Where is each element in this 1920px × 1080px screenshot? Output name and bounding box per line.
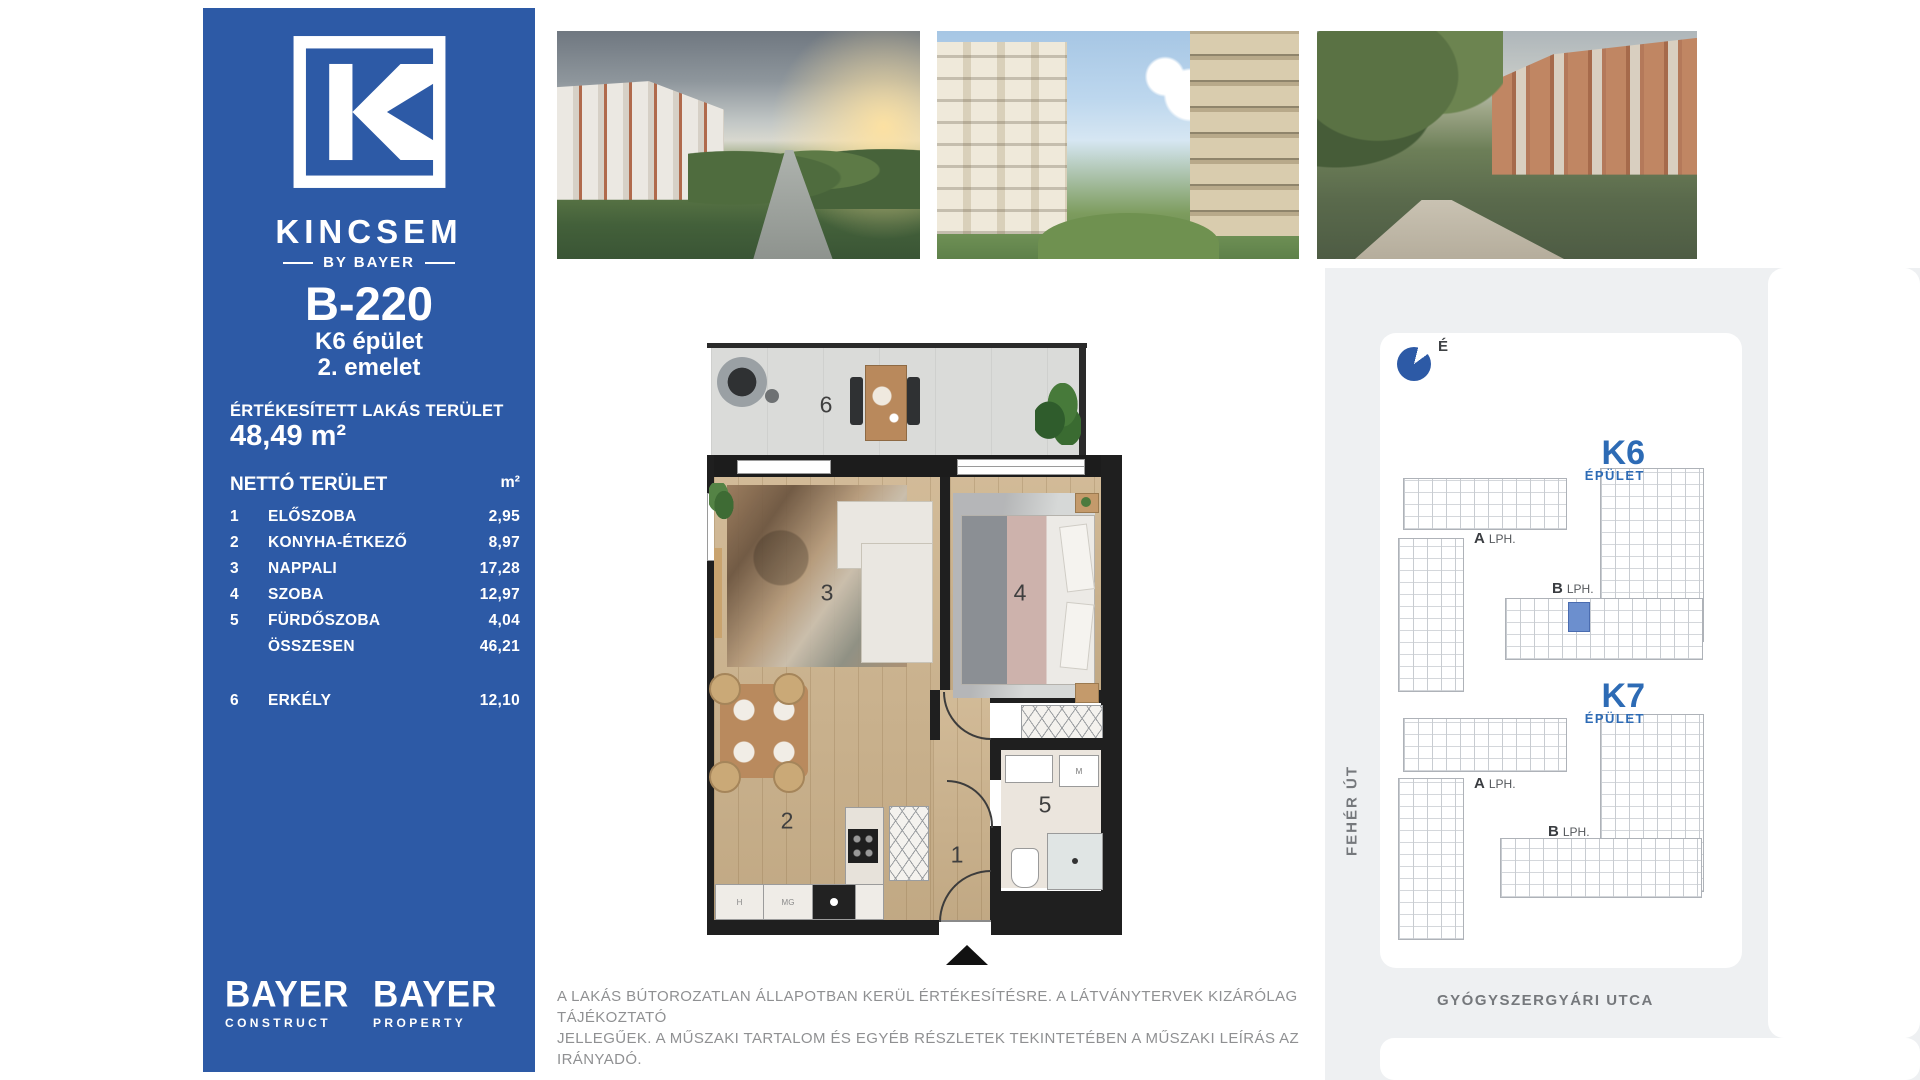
balcony-chair xyxy=(907,377,920,425)
unit-id: B-220 xyxy=(203,276,535,331)
row-value: 17,28 xyxy=(480,560,520,578)
render-photo-aerial xyxy=(557,31,920,259)
bayer-property-logo: BAYER PROPERTY xyxy=(373,974,523,1030)
render-building-left xyxy=(937,42,1067,234)
lobby-letter: A xyxy=(1474,775,1485,792)
north-label: É xyxy=(1438,338,1448,355)
balcony-chair xyxy=(850,377,863,425)
render-photo-courtyard xyxy=(937,31,1299,259)
room-number-balcony: 6 xyxy=(820,392,833,419)
sidebar: KINCSEM BY BAYER B-220 K6 épület 2. emel… xyxy=(203,8,535,1072)
flyer-page: KINCSEM BY BAYER B-220 K6 épület 2. emel… xyxy=(0,0,1920,1080)
street-label-feher-ut: FEHÉR ÚT xyxy=(1344,761,1361,861)
building-code: K7 xyxy=(1520,681,1645,711)
plant xyxy=(709,483,739,527)
room-number-kitchen: 2 xyxy=(781,808,794,835)
logo-sub: PROPERTY xyxy=(373,1016,523,1030)
row-num: 1 xyxy=(230,508,268,526)
logo-sub: CONSTRUCT xyxy=(225,1016,375,1030)
room-number-bedroom: 4 xyxy=(1014,580,1027,607)
lobby-suffix: LPH. xyxy=(1563,825,1590,839)
dining-chair xyxy=(709,673,741,705)
plant xyxy=(1035,383,1081,445)
logo-name: BAYER xyxy=(373,974,523,1016)
north-compass-icon xyxy=(1397,347,1431,381)
table-row-balcony: 6 ERKÉLY 12,10 xyxy=(230,688,520,714)
disclaimer-line: JELLEGŰEK. A MŰSZAKI TARTALOM ÉS EGYÉB R… xyxy=(557,1028,1315,1070)
wall xyxy=(1101,455,1122,935)
room-number-bathroom: 5 xyxy=(1039,792,1052,819)
floor-name: 2. emelet xyxy=(203,354,535,382)
cooktop xyxy=(848,829,878,863)
table-row-total: ÖSSZESEN 46,21 xyxy=(230,634,520,660)
building-type: ÉPÜLET xyxy=(1520,468,1645,483)
wall xyxy=(990,738,1122,750)
washing-machine: M xyxy=(1059,755,1099,787)
table-row: 1 ELŐSZOBA 2,95 xyxy=(230,504,520,530)
siteplan-right-block xyxy=(1768,268,1920,1038)
row-num: 6 xyxy=(230,692,268,710)
wall xyxy=(930,690,940,740)
bayer-construct-logo: BAYER CONSTRUCT xyxy=(225,974,375,1030)
row-label: ERKÉLY xyxy=(268,692,331,710)
brand-byline: BY BAYER xyxy=(203,254,535,271)
area-table-header: NETTÓ TERÜLET m² xyxy=(230,474,520,496)
k7-wing xyxy=(1403,718,1567,772)
render-building xyxy=(1492,38,1697,175)
nightstand xyxy=(1075,493,1099,513)
table-row: 3 NAPPALI 17,28 xyxy=(230,556,520,582)
highlighted-unit xyxy=(1568,602,1590,632)
row-value: 4,04 xyxy=(489,612,520,630)
kitchen-appliance-row: H MG xyxy=(715,884,884,920)
nightstand xyxy=(1075,683,1099,703)
wall xyxy=(707,920,1122,935)
side-table xyxy=(765,389,779,403)
lobby-letter: B xyxy=(1548,823,1559,840)
logo-name: BAYER xyxy=(225,974,375,1016)
row-value: 2,95 xyxy=(489,508,520,526)
net-area-label: NETTÓ TERÜLET xyxy=(230,474,387,496)
lobby-suffix: LPH. xyxy=(1489,777,1516,791)
row-value: 12,97 xyxy=(480,586,520,604)
street-label-gyogyszergyari-utca: GYÓGYSZERGYÁRI UTCA xyxy=(1437,992,1654,1009)
window xyxy=(737,460,831,474)
brand-name: KINCSEM xyxy=(203,213,535,251)
k7-lobby-a-label: A LPH. xyxy=(1474,775,1516,792)
render-photo-street xyxy=(1317,31,1697,259)
k7-lobby-b-label: B LPH. xyxy=(1548,823,1590,840)
row-num: 5 xyxy=(230,612,268,630)
floor-plan: H MG M 6 3 4 2 1 5 xyxy=(707,343,1122,968)
room-number-living: 3 xyxy=(821,580,834,607)
disclaimer-line: A LAKÁS BÚTOROZATLAN ÁLLAPOTBAN KERÜL ÉR… xyxy=(557,986,1315,1028)
k7-wing xyxy=(1500,838,1702,898)
disclaimer-text: A LAKÁS BÚTOROZATLAN ÁLLAPOTBAN KERÜL ÉR… xyxy=(557,986,1315,1070)
dishwasher-label: MG xyxy=(764,885,813,919)
dining-chair xyxy=(773,761,805,793)
row-label: ÖSSZESEN xyxy=(268,638,355,656)
entry-door-opening xyxy=(939,920,991,937)
bathroom-sink xyxy=(1005,755,1053,783)
k6-wing xyxy=(1398,538,1464,692)
dining-chair xyxy=(773,673,805,705)
row-value: 46,21 xyxy=(480,638,520,656)
sold-area-label: ÉRTÉKESÍTETT LAKÁS TERÜLET xyxy=(230,402,520,421)
wall xyxy=(707,343,1087,348)
sofa xyxy=(861,543,933,663)
k6-lobby-a-label: A LPH. xyxy=(1474,530,1516,547)
table-row: 4 SZOBA 12,97 xyxy=(230,582,520,608)
building-code: K6 xyxy=(1520,438,1645,468)
k6-building-label: K6 ÉPÜLET xyxy=(1520,438,1645,483)
table-row: 5 FÜRDŐSZOBA 4,04 xyxy=(230,608,520,634)
row-label: KONYHA-ÉTKEZŐ xyxy=(268,534,407,552)
shower xyxy=(1047,833,1103,890)
wardrobe xyxy=(1021,705,1103,739)
row-label: SZOBA xyxy=(268,586,324,604)
row-label: ELŐSZOBA xyxy=(268,508,357,526)
kitchen-sink xyxy=(813,885,856,919)
sideboard xyxy=(714,548,722,638)
lobby-letter: B xyxy=(1552,580,1563,597)
k6-wing xyxy=(1403,478,1567,530)
lobby-suffix: LPH. xyxy=(1567,582,1594,596)
sliding-door xyxy=(957,459,1085,475)
fridge-label: H xyxy=(716,885,764,919)
row-label: NAPPALI xyxy=(268,560,337,578)
row-label: FÜRDŐSZOBA xyxy=(268,612,380,630)
byline-text: BY BAYER xyxy=(323,254,415,271)
row-value: 8,97 xyxy=(489,534,520,552)
row-value: 12,10 xyxy=(480,692,520,710)
toilet xyxy=(1011,848,1039,888)
lobby-suffix: LPH. xyxy=(1489,532,1516,546)
wall xyxy=(940,477,950,690)
unit-header: m² xyxy=(500,474,520,496)
kitchen-cabinet xyxy=(889,806,929,881)
room-number-hall: 1 xyxy=(951,842,964,869)
k7-building-label: K7 ÉPÜLET xyxy=(1520,681,1645,726)
entrance-arrow-icon xyxy=(946,945,988,965)
lounge-chair xyxy=(717,357,767,407)
render-tree xyxy=(1317,31,1503,177)
building-type: ÉPÜLET xyxy=(1520,711,1645,726)
sold-area-value: 48,49 m² xyxy=(230,420,346,453)
counter-segment xyxy=(856,885,883,919)
row-num: 2 xyxy=(230,534,268,552)
building-name: K6 épület xyxy=(203,328,535,356)
k6-lobby-b-label: B LPH. xyxy=(1552,580,1594,597)
k6-wing xyxy=(1505,598,1703,660)
dining-chair xyxy=(709,761,741,793)
render-path xyxy=(1355,200,1564,259)
table-row: 2 KONYHA-ÉTKEZŐ 8,97 xyxy=(230,530,520,556)
kincsem-logo-icon xyxy=(292,32,447,192)
row-num: 3 xyxy=(230,560,268,578)
row-num: 4 xyxy=(230,586,268,604)
balcony-table xyxy=(865,365,907,441)
render-building-right xyxy=(1190,31,1299,236)
siteplan-bottom-block xyxy=(1380,1038,1920,1080)
lobby-letter: A xyxy=(1474,530,1485,547)
k7-wing xyxy=(1398,778,1464,940)
